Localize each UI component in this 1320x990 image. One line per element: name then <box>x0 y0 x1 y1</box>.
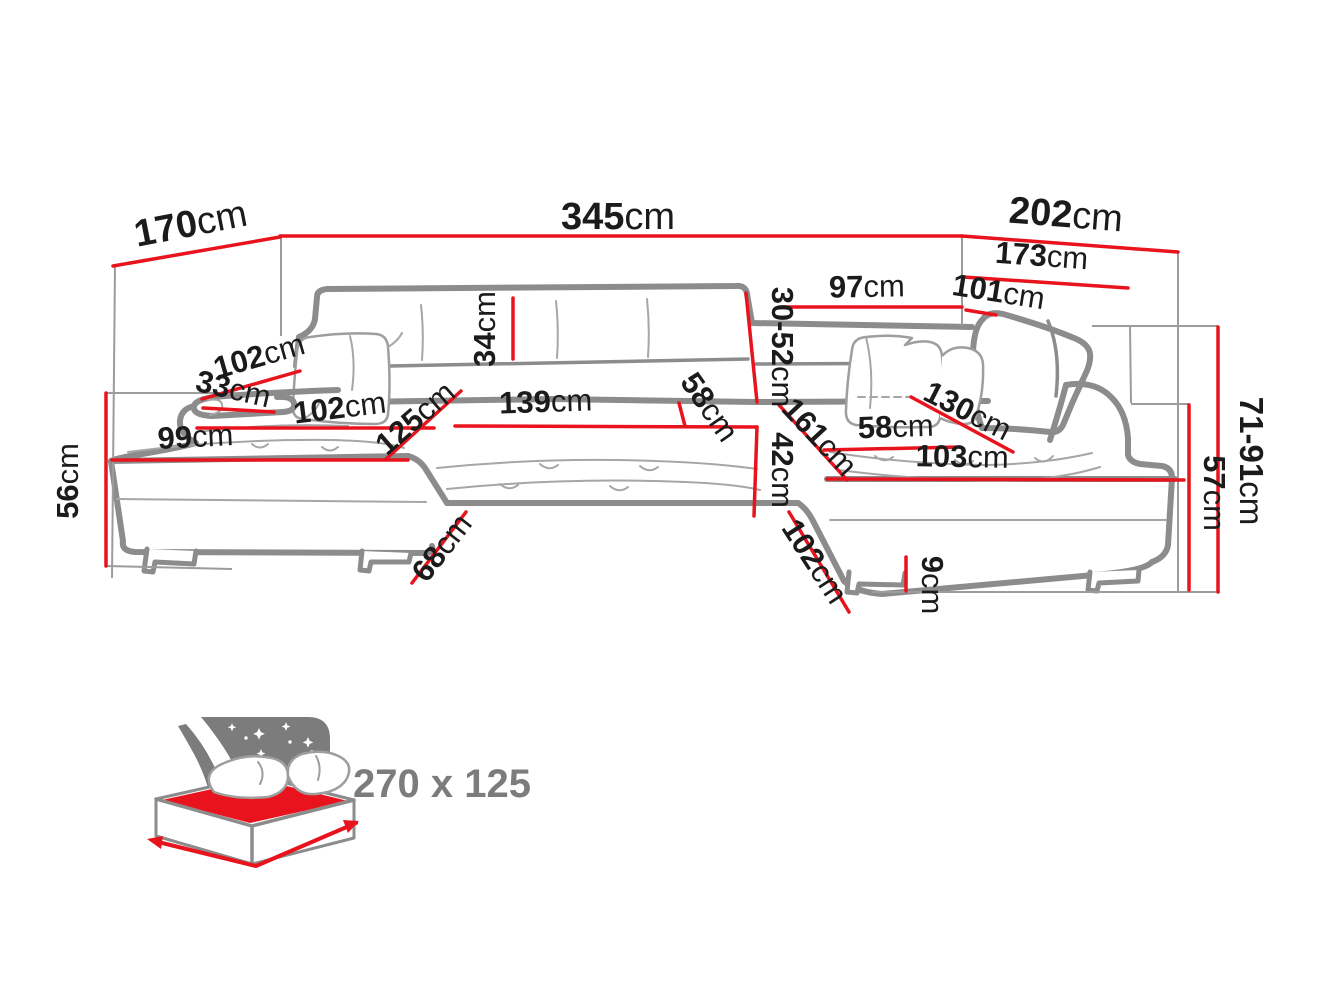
middle-seat-seams <box>437 460 760 490</box>
dim-label-71-91: 71-91cm <box>1233 397 1270 525</box>
dim-label-30-52: 30-52cm <box>765 287 800 408</box>
dimension-lines <box>106 236 1218 612</box>
sofa-leg <box>1088 570 1139 591</box>
sleeping-function-icon: 270 x 125 <box>147 717 531 866</box>
dim-label-57: 57cm <box>1197 455 1232 531</box>
dim-label-68: 68cm <box>405 507 479 588</box>
dim-label-99: 99cm <box>157 417 235 456</box>
sofa-backrest-creases <box>421 299 649 360</box>
dim-line-103 <box>827 479 1184 480</box>
right-armrest-outer <box>1066 384 1172 478</box>
bed-arrowhead-left <box>147 836 163 849</box>
dim-label-103: 103cm <box>915 438 1009 475</box>
dim-label-101: 101cm <box>950 267 1047 316</box>
dim-label-97: 97cm <box>829 268 905 304</box>
dim-label-139: 139cm <box>499 382 593 420</box>
dim-label-202: 202cm <box>1007 190 1124 241</box>
dim-label-9: 9cm <box>915 556 950 615</box>
dim-label-34: 34cm <box>467 291 502 367</box>
diagram-canvas: 170cm 345cm 202cm 173cm 97cm 101cm 34cm … <box>0 0 1320 990</box>
dim-line-58-mid <box>679 403 685 426</box>
dim-label-56: 56cm <box>50 443 85 519</box>
chaise-base-seam <box>117 499 426 502</box>
chaise-inner-corner <box>408 456 447 503</box>
sofa-leg <box>360 551 411 571</box>
dim-label-58-mid: 58cm <box>674 366 746 448</box>
dim-label-173: 173cm <box>994 235 1089 276</box>
sofa-line-art <box>111 286 1175 594</box>
sofa-dimension-diagram: 170cm 345cm 202cm 173cm 97cm 101cm 34cm … <box>0 0 1320 990</box>
dim-label-42: 42cm <box>765 432 800 508</box>
sleeping-area-label: 270 x 125 <box>353 762 531 806</box>
dim-label-345: 345cm <box>561 196 675 238</box>
